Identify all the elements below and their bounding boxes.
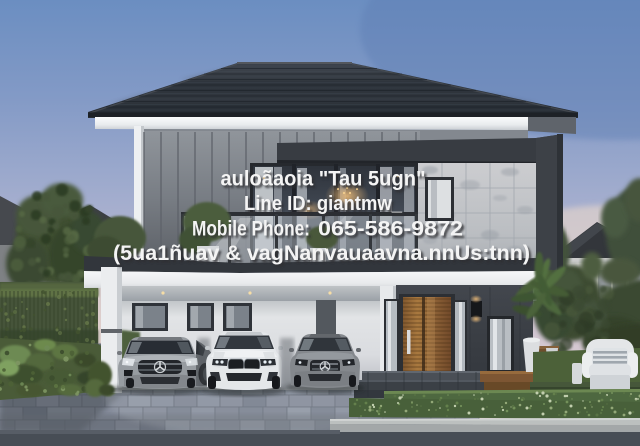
svg-text:auloãaoia "Tau 5ugn": auloãaoia "Tau 5ugn" xyxy=(221,168,426,191)
svg-text:065-586-9872: 065-586-9872 xyxy=(318,217,463,241)
svg-text:Line ID: giantmw_: Line ID: giantmw_ xyxy=(244,192,403,215)
svg-text:(5ua1ñuav & vagNanvauaavna.nnU: (5ua1ñuav & vagNanvauaavna.nnUs:tnn) xyxy=(113,242,530,265)
svg-text:Mobile Phone:: Mobile Phone: xyxy=(192,217,310,241)
